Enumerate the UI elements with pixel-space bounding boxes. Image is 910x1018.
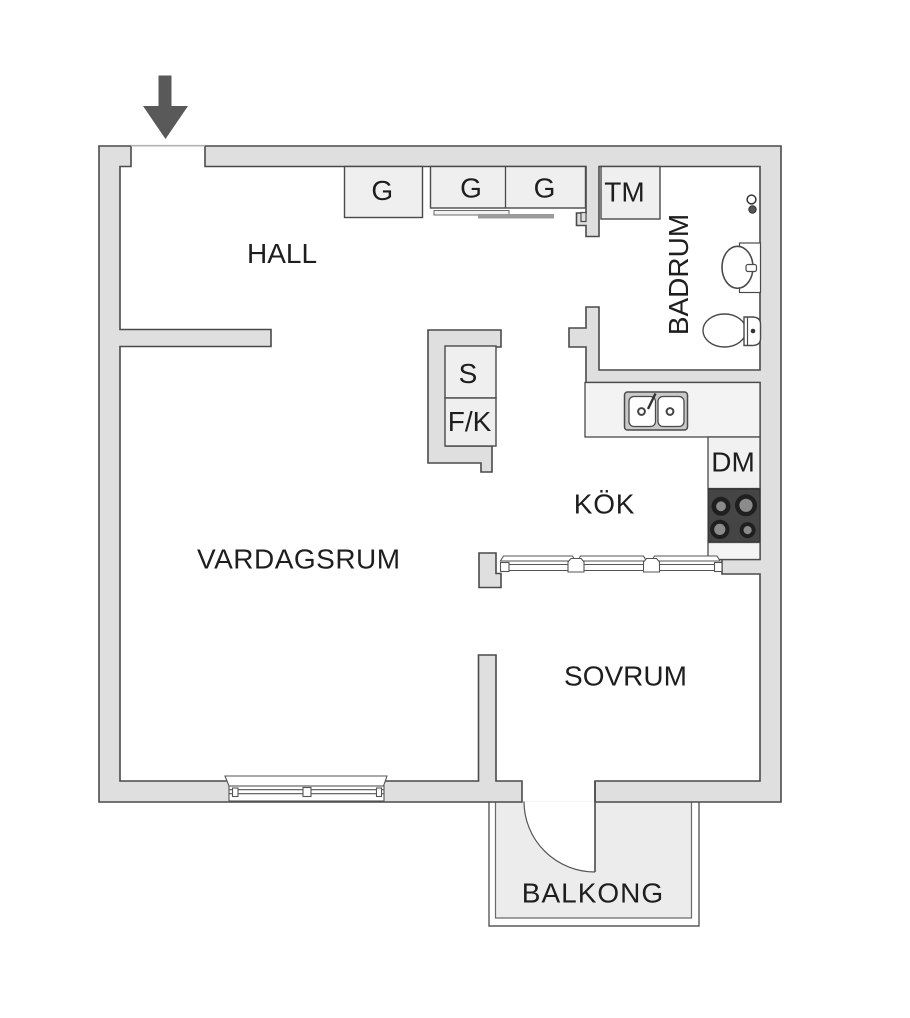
svg-text:BADRUM: BADRUM xyxy=(663,214,694,335)
svg-text:KÖK: KÖK xyxy=(574,489,636,520)
svg-text:F/K: F/K xyxy=(448,406,492,437)
svg-text:BALKONG: BALKONG xyxy=(522,877,664,908)
svg-text:VARDAGSRUM: VARDAGSRUM xyxy=(197,544,401,575)
svg-text:HALL: HALL xyxy=(247,238,317,269)
svg-text:SOVRUM: SOVRUM xyxy=(564,660,687,691)
svg-text:G: G xyxy=(460,173,482,204)
svg-text:TM: TM xyxy=(604,177,644,208)
svg-text:G: G xyxy=(371,175,393,206)
svg-text:G: G xyxy=(534,173,556,204)
svg-text:DM: DM xyxy=(711,447,755,478)
svg-text:S: S xyxy=(459,358,478,389)
